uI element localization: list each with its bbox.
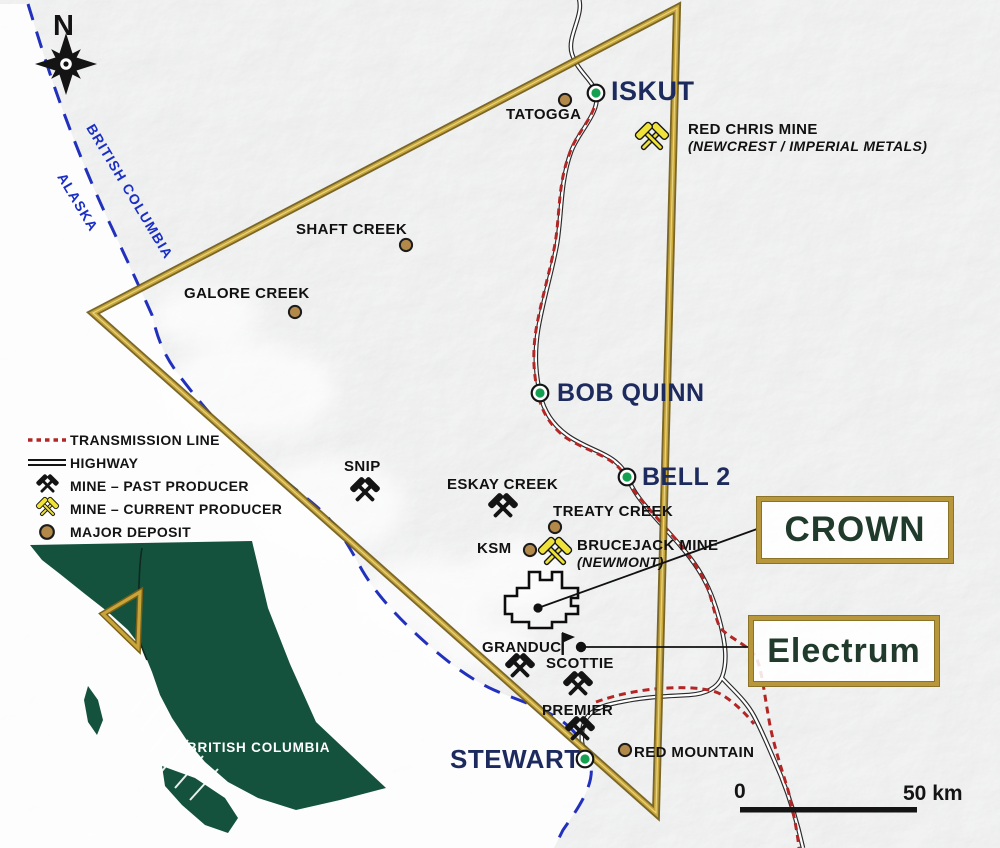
mine-owner-red-chris: (NEWCREST / IMPERIAL METALS) xyxy=(688,138,927,154)
mine-owner-brucejack: (NEWMONT) xyxy=(577,554,664,570)
mine-label-red-chris: RED CHRIS MINE xyxy=(688,121,818,138)
town-label-iskut: ISKUT xyxy=(611,76,695,107)
crown-label: CROWN xyxy=(784,510,925,550)
deposit-label-ksm: KSM xyxy=(477,540,512,557)
mine-label-premier: PREMIER xyxy=(542,702,613,719)
legend-row-mine-current: MINE – CURRENT PRODUCER xyxy=(24,497,282,520)
mine-label-eskay-creek: ESKAY CREEK xyxy=(447,476,558,493)
legend-label: MINE – CURRENT PRODUCER xyxy=(70,501,282,517)
mine-marker-red-chris xyxy=(632,119,672,159)
major-deposit-icon xyxy=(24,523,70,541)
legend-label: TRANSMISSION LINE xyxy=(70,432,220,448)
town-marker-bob-quinn xyxy=(530,383,550,403)
mine-marker-scottie xyxy=(560,668,596,704)
legend-row-mine-past: MINE – PAST PRODUCER xyxy=(24,474,282,497)
town-label-bell-2: BELL 2 xyxy=(642,463,731,492)
mine-label-brucejack: BRUCEJACK MINE xyxy=(577,537,718,554)
deposit-marker-galore-creek xyxy=(287,304,303,320)
scale-bar-line xyxy=(740,807,917,813)
town-marker-iskut xyxy=(586,83,606,103)
legend-row-transmission-line: TRANSMISSION LINE xyxy=(24,428,282,451)
mine-marker-snip xyxy=(347,474,383,510)
deposit-marker-treaty-creek xyxy=(547,519,563,535)
electrum-label: Electrum xyxy=(767,632,921,671)
deposit-label-galore-creek: GALORE CREEK xyxy=(184,285,310,302)
crown-callout-box: CROWN xyxy=(757,497,953,563)
town-marker-bell-2 xyxy=(617,467,637,487)
legend-label: HIGHWAY xyxy=(70,455,138,471)
legend-label: MAJOR DEPOSIT xyxy=(70,524,191,540)
deposit-label-treaty-creek: TREATY CREEK xyxy=(553,503,673,520)
mine-label-scottie: SCOTTIE xyxy=(546,655,614,672)
mine-label-snip: SNIP xyxy=(344,458,381,475)
legend-row-major-deposit: MAJOR DEPOSIT xyxy=(24,520,282,543)
legend-row-highway: HIGHWAY xyxy=(24,451,282,474)
town-label-bob-quinn: BOB QUINN xyxy=(557,379,705,408)
highway-icon xyxy=(24,458,70,467)
transmission-line-icon xyxy=(24,437,70,443)
mine-label-granduc: GRANDUC xyxy=(482,639,561,656)
golden-triangle-map: N BRITISH COLUMBIA ALASKA ISKUT BOB QUIN… xyxy=(0,0,1000,848)
scale-bar-end-label: 50 km xyxy=(903,782,963,806)
legend-label: MINE – PAST PRODUCER xyxy=(70,478,249,494)
electrum-callout-box: Electrum xyxy=(749,616,939,686)
compass-north-label: N xyxy=(53,10,74,43)
legend: TRANSMISSION LINE HIGHWAY MINE – PAST PR… xyxy=(24,428,282,543)
town-label-stewart: STEWART xyxy=(450,744,568,775)
mine-marker-brucejack xyxy=(535,534,575,574)
deposit-label-red-mountain: RED MOUNTAIN xyxy=(634,744,754,761)
deposit-marker-red-mountain xyxy=(617,742,633,758)
scale-bar-start-label: 0 xyxy=(734,780,746,804)
inset-bc-label: BRITISH COLUMBIA xyxy=(187,740,330,755)
deposit-label-tatogga: TATOGGA xyxy=(506,106,581,123)
deposit-label-shaft-creek: SHAFT CREEK xyxy=(296,221,407,238)
map-canvas xyxy=(0,0,1000,848)
mine-current-producer-icon xyxy=(24,495,70,522)
deposit-marker-shaft-creek xyxy=(398,237,414,253)
mine-marker-eskay-creek xyxy=(485,490,521,526)
